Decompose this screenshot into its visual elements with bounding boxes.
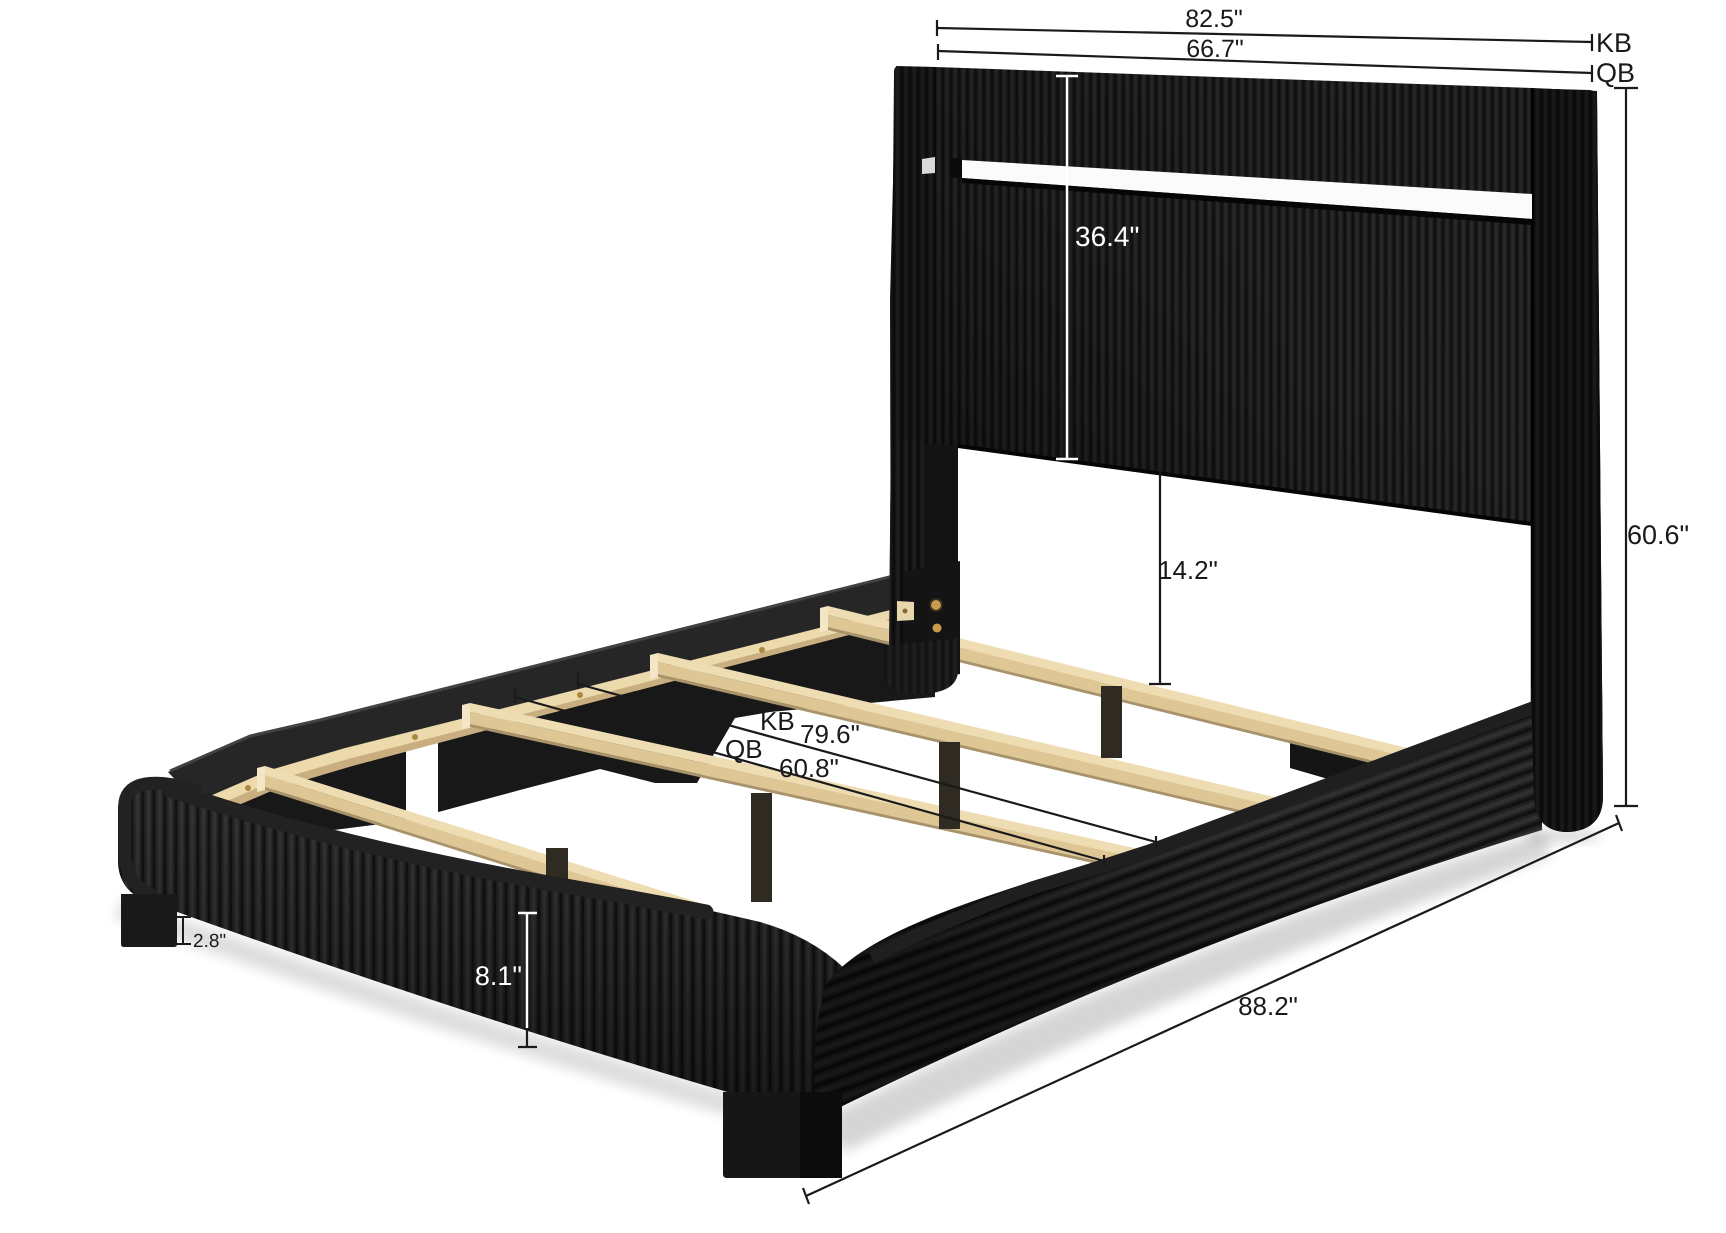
svg-text:QB: QB	[725, 734, 763, 764]
svg-text:82.5": 82.5"	[1185, 5, 1243, 33]
svg-text:KB: KB	[1596, 28, 1632, 58]
svg-text:36.4": 36.4"	[1075, 221, 1139, 252]
svg-text:60.8": 60.8"	[779, 753, 839, 783]
svg-text:14.2": 14.2"	[1158, 555, 1218, 585]
svg-text:2.8": 2.8"	[193, 931, 226, 952]
svg-text:88.2": 88.2"	[1238, 991, 1298, 1021]
svg-text:8.1": 8.1"	[475, 961, 522, 991]
svg-text:66.7": 66.7"	[1186, 35, 1244, 63]
svg-text:KB: KB	[760, 706, 795, 736]
svg-text:60.6": 60.6"	[1627, 520, 1689, 550]
svg-text:QB: QB	[1596, 58, 1635, 88]
svg-text:79.6": 79.6"	[800, 719, 860, 749]
